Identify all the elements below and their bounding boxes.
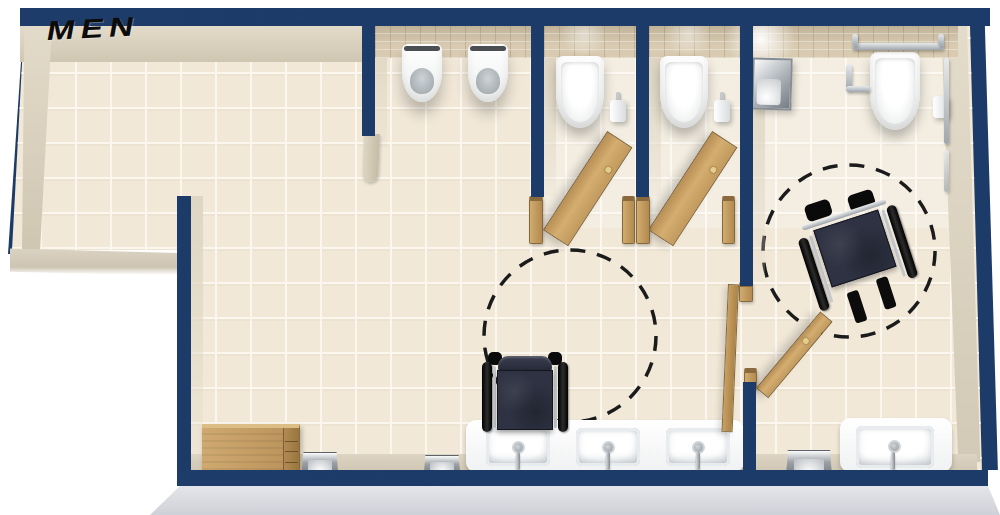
wall-stall-divider bbox=[531, 25, 544, 197]
toilet[interactable] bbox=[556, 56, 604, 128]
door-handle bbox=[604, 166, 612, 174]
wall-bottom bbox=[177, 470, 988, 486]
grab-bar-end bbox=[852, 34, 858, 46]
wheelchair-footrest bbox=[876, 276, 897, 310]
door-frame-post bbox=[529, 196, 543, 244]
left-stub-wall-face bbox=[191, 196, 203, 458]
door-handle bbox=[709, 166, 717, 174]
wheelchair-wheel bbox=[482, 362, 492, 432]
door-frame-post bbox=[622, 196, 635, 244]
wheelchair-frame bbox=[493, 366, 496, 428]
wall-accessible-upper bbox=[740, 25, 753, 286]
stall-wall-face bbox=[544, 58, 556, 196]
wheelchair-backrest bbox=[497, 370, 553, 430]
toilet-paper-holder[interactable] bbox=[610, 100, 626, 122]
wall-accessible-lower bbox=[743, 382, 756, 472]
wall-stall-divider bbox=[636, 25, 649, 197]
faucet bbox=[606, 452, 610, 470]
grab-bar-end bbox=[938, 34, 944, 46]
wheelchair-frame bbox=[554, 366, 557, 428]
cabinet-drawers bbox=[283, 428, 299, 470]
toilet-seat bbox=[875, 58, 915, 124]
grab-bar-rear[interactable] bbox=[852, 43, 944, 50]
wood-cabinet[interactable] bbox=[202, 424, 300, 470]
door-frame-post bbox=[636, 196, 650, 244]
floor-plan-canvas: MEN bbox=[0, 0, 1000, 515]
toilet[interactable] bbox=[660, 56, 708, 128]
towel-dispenser[interactable] bbox=[751, 57, 792, 110]
sink-drain bbox=[890, 442, 899, 451]
urinal[interactable] bbox=[402, 44, 442, 102]
grab-bar-wall[interactable] bbox=[944, 150, 949, 192]
toilet-paper-holder[interactable] bbox=[714, 100, 730, 122]
wall-end-post bbox=[362, 134, 380, 182]
toilet-seat bbox=[665, 62, 703, 122]
faucet bbox=[696, 452, 700, 470]
sink-drain bbox=[694, 443, 703, 452]
door-handle bbox=[802, 337, 810, 345]
urinal[interactable] bbox=[468, 44, 508, 102]
toilet-seat bbox=[561, 62, 599, 122]
grab-bar-left bbox=[846, 86, 870, 92]
wheelchair-footrest bbox=[846, 290, 867, 324]
faucet bbox=[891, 452, 895, 470]
sink-drain bbox=[514, 443, 523, 452]
wall-entry-divider bbox=[362, 25, 375, 136]
accessible-toilet[interactable] bbox=[870, 52, 920, 130]
wheelchair[interactable] bbox=[482, 354, 568, 434]
wall-left-stub bbox=[177, 196, 191, 472]
faucet bbox=[516, 452, 520, 470]
sink-drain bbox=[604, 443, 613, 452]
grab-bar-wall[interactable] bbox=[944, 58, 949, 144]
door-frame-post bbox=[722, 196, 735, 244]
wheelchair-wheel bbox=[558, 362, 568, 432]
